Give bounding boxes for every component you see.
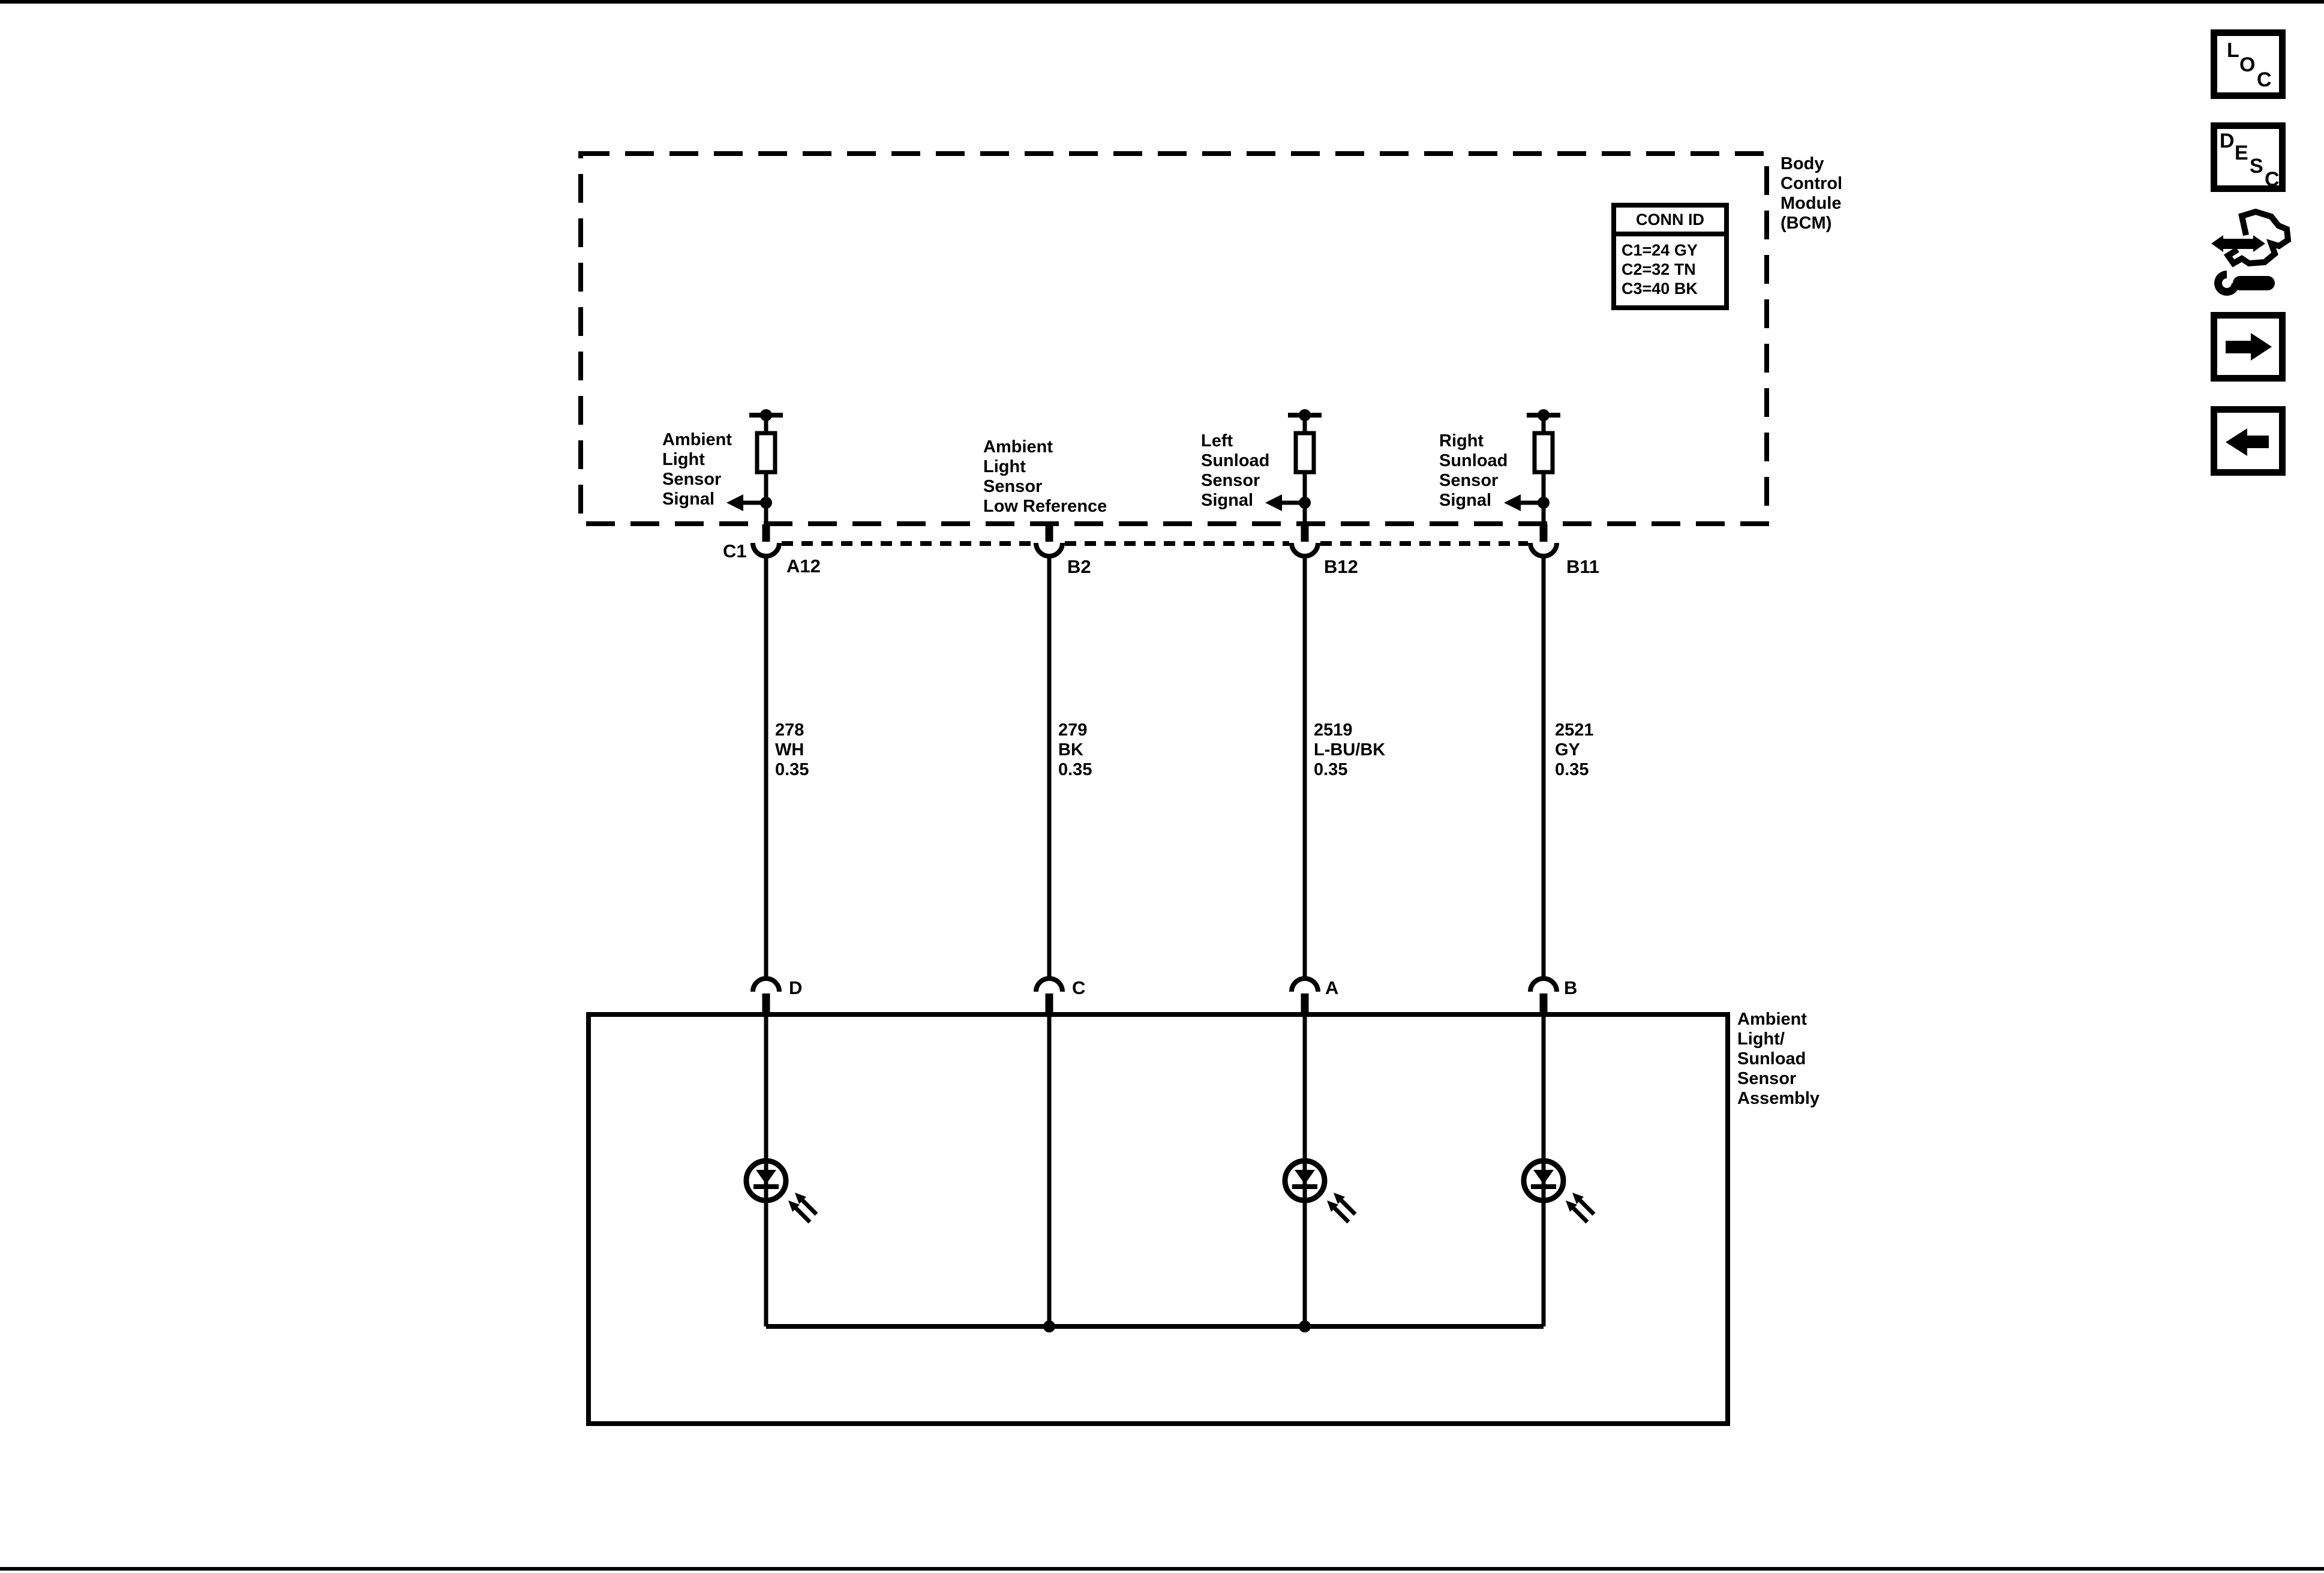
resistor-symbol — [757, 433, 775, 472]
conn-id-row: C2=32 TN — [1622, 262, 1696, 278]
branch-4-label: Right Sunload Sensor Signal — [1439, 431, 1508, 511]
photodiode-2 — [1285, 1161, 1355, 1222]
loc-letter: O — [2239, 55, 2255, 75]
connector-half-bottom — [1292, 978, 1318, 992]
bcm-label: Body Control Module (BCM) — [1780, 154, 1842, 233]
desc-button[interactable]: D E S C — [2211, 122, 2286, 192]
pin-bottom-4: B — [1564, 978, 1577, 997]
conn-id-row: C3=40 BK — [1622, 281, 1698, 297]
desc-letter: D — [2220, 131, 2235, 151]
conn-id-title: CONN ID — [1614, 211, 1727, 229]
pin-top-1: A12 — [786, 557, 821, 575]
branch-2-wire — [1036, 524, 1062, 1326]
wiring-diagram-page: Body Control Module (BCM) CONN ID C1=24 … — [0, 0, 2324, 1573]
assembly-box — [588, 1014, 1728, 1424]
desc-letter: E — [2235, 143, 2248, 163]
wrench-icon[interactable] — [2211, 212, 2288, 296]
connector-half-bottom — [753, 978, 779, 992]
wire-label-3: 2519 L-BU/BK 0.35 — [1314, 721, 1385, 780]
loc-button[interactable]: L O C — [2211, 29, 2286, 99]
connector-half-top — [1530, 543, 1557, 556]
wire-label-2: 279 BK 0.35 — [1058, 721, 1092, 780]
pin-bottom-3: A — [1325, 978, 1338, 997]
junction-dot — [1299, 1320, 1311, 1332]
loc-letter: C — [2257, 70, 2272, 90]
schematic-graphics — [0, 0, 2324, 1573]
connector-half-top — [1292, 543, 1318, 556]
light-arrows-icon — [1566, 1193, 1594, 1222]
loc-letter: L — [2227, 40, 2239, 61]
branch-1-label: Ambient Light Sensor Signal — [662, 430, 732, 509]
light-arrows-icon — [788, 1193, 816, 1222]
desc-letter: C — [2265, 169, 2280, 190]
connector-half-top — [1036, 543, 1062, 556]
connector-half-top — [753, 543, 779, 556]
photodiode-3 — [1524, 1161, 1594, 1222]
assembly-bus — [766, 1320, 1544, 1332]
left-arrow-icon — [2217, 413, 2279, 470]
assembly-label: Ambient Light/ Sunload Sensor Assembly — [1737, 1010, 1819, 1109]
connector-c1-label: C1 — [723, 542, 747, 560]
conn-id-row: C1=24 GY — [1622, 242, 1698, 259]
connector-half-bottom — [1036, 978, 1062, 992]
connector-half-bottom — [1530, 978, 1557, 992]
pin-bottom-1: D — [789, 978, 802, 997]
photodiode-1 — [746, 1161, 816, 1222]
desc-letter: S — [2250, 156, 2263, 176]
resistor-symbol — [1535, 433, 1553, 472]
junction-dot — [1043, 1320, 1055, 1332]
wire-label-4: 2521 GY 0.35 — [1555, 721, 1594, 780]
branch-2-label: Ambient Light Sensor Low Reference — [983, 437, 1107, 517]
pin-top-3: B12 — [1324, 557, 1358, 576]
pin-bottom-2: C — [1072, 978, 1085, 997]
right-arrow-icon — [2217, 319, 2279, 376]
resistor-symbol — [1296, 433, 1314, 472]
forward-button[interactable] — [2211, 312, 2286, 382]
back-button[interactable] — [2211, 406, 2286, 476]
light-arrows-icon — [1327, 1193, 1355, 1222]
branch-3-label: Left Sunload Sensor Signal — [1201, 431, 1269, 511]
pin-top-4: B11 — [1566, 557, 1599, 576]
wire-label-1: 278 WH 0.35 — [775, 721, 809, 780]
pin-top-2: B2 — [1067, 557, 1091, 576]
